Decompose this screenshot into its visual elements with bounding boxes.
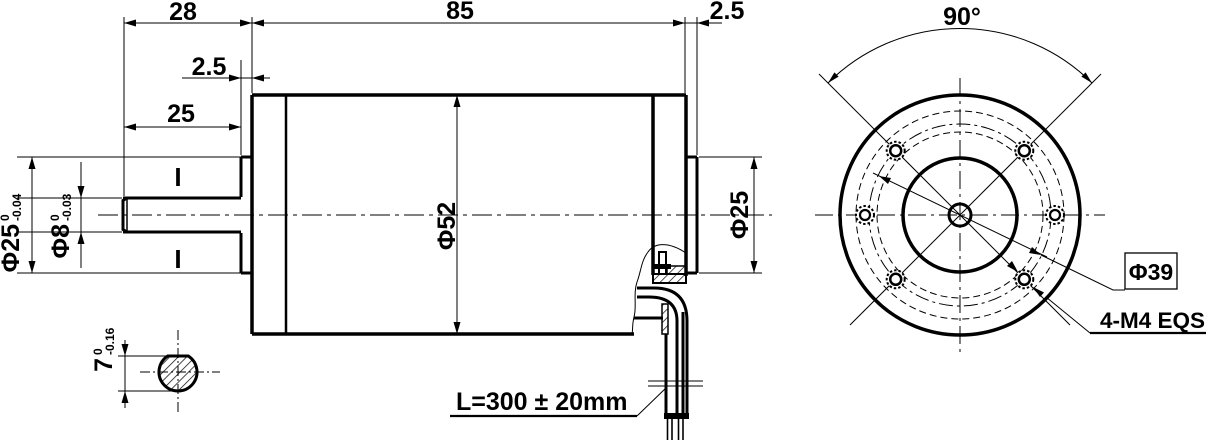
svg-text:7: 7 xyxy=(90,358,118,372)
svg-text:-0.16: -0.16 xyxy=(103,327,117,355)
extension-lines xyxy=(17,17,762,273)
diagonal-135 xyxy=(819,74,1070,325)
cable-length-label: L=300 ± 20mm xyxy=(450,387,667,416)
m4-hole xyxy=(887,142,905,160)
dimension-texts: 28 85 2.5 2.5 25 Φ52 Φ25 Φ25 0 -0.04 Φ8 … xyxy=(0,0,754,272)
m4-hole xyxy=(1015,142,1033,160)
angle-arc xyxy=(828,28,1092,83)
dim-2p5-front: 2.5 xyxy=(192,53,227,81)
wall-hatch xyxy=(662,304,668,334)
dim-phi25-front: Φ25 0 -0.04 xyxy=(0,193,25,272)
dim-28: 28 xyxy=(169,0,197,26)
note-leader-arrow xyxy=(1033,287,1044,297)
cable-length-leader xyxy=(637,387,667,416)
clamp-pin xyxy=(659,252,666,274)
d-cut-shaft-section xyxy=(159,356,197,391)
m4-hole xyxy=(1015,270,1033,288)
dim-25: 25 xyxy=(167,100,195,128)
assembly-hole xyxy=(856,206,874,224)
svg-text:-0.04: -0.04 xyxy=(10,193,24,221)
diagonal-45 xyxy=(850,74,1101,325)
technical-drawing-motor: I I xyxy=(0,0,1208,440)
dim-phi25-rear: Φ25 xyxy=(726,191,754,239)
dim-phi8: Φ8 0 -0.03 xyxy=(47,193,75,258)
svg-text:Φ25: Φ25 xyxy=(0,224,25,272)
m4-hole xyxy=(887,270,905,288)
assembly-hole xyxy=(1046,206,1064,224)
section-mark-bottom: I xyxy=(174,244,181,274)
dim-flat-7: 7 0 -0.16 xyxy=(90,327,118,372)
dim-2p5-rear: 2.5 xyxy=(710,0,745,25)
cable-jacket-end xyxy=(664,413,689,419)
front-view: 90° Φ39 4-M4 EQS xyxy=(815,3,1206,356)
dim-85: 85 xyxy=(446,0,474,25)
svg-text:4-M4 EQS: 4-M4 EQS xyxy=(1100,308,1205,333)
svg-text:Φ8: Φ8 xyxy=(47,224,75,259)
section-mark-top: I xyxy=(174,162,181,192)
shaft-section-detail: 7 0 -0.16 xyxy=(90,327,220,413)
drawing-svg: I I xyxy=(0,0,1208,440)
angle-label: 90° xyxy=(943,3,981,31)
grommet-plate xyxy=(653,274,686,283)
clamp-pin-bar xyxy=(654,264,671,269)
dim-phi52: Φ52 xyxy=(433,202,461,250)
side-view: I I xyxy=(0,0,772,440)
svg-text:L=300 ± 20mm: L=300 ± 20mm xyxy=(456,388,627,416)
note-leader xyxy=(1046,297,1090,333)
svg-text:-0.03: -0.03 xyxy=(60,193,74,221)
mounting-holes-note: 4-M4 EQS xyxy=(1033,287,1206,333)
bolt-circle-label: Φ39 xyxy=(1129,259,1173,285)
